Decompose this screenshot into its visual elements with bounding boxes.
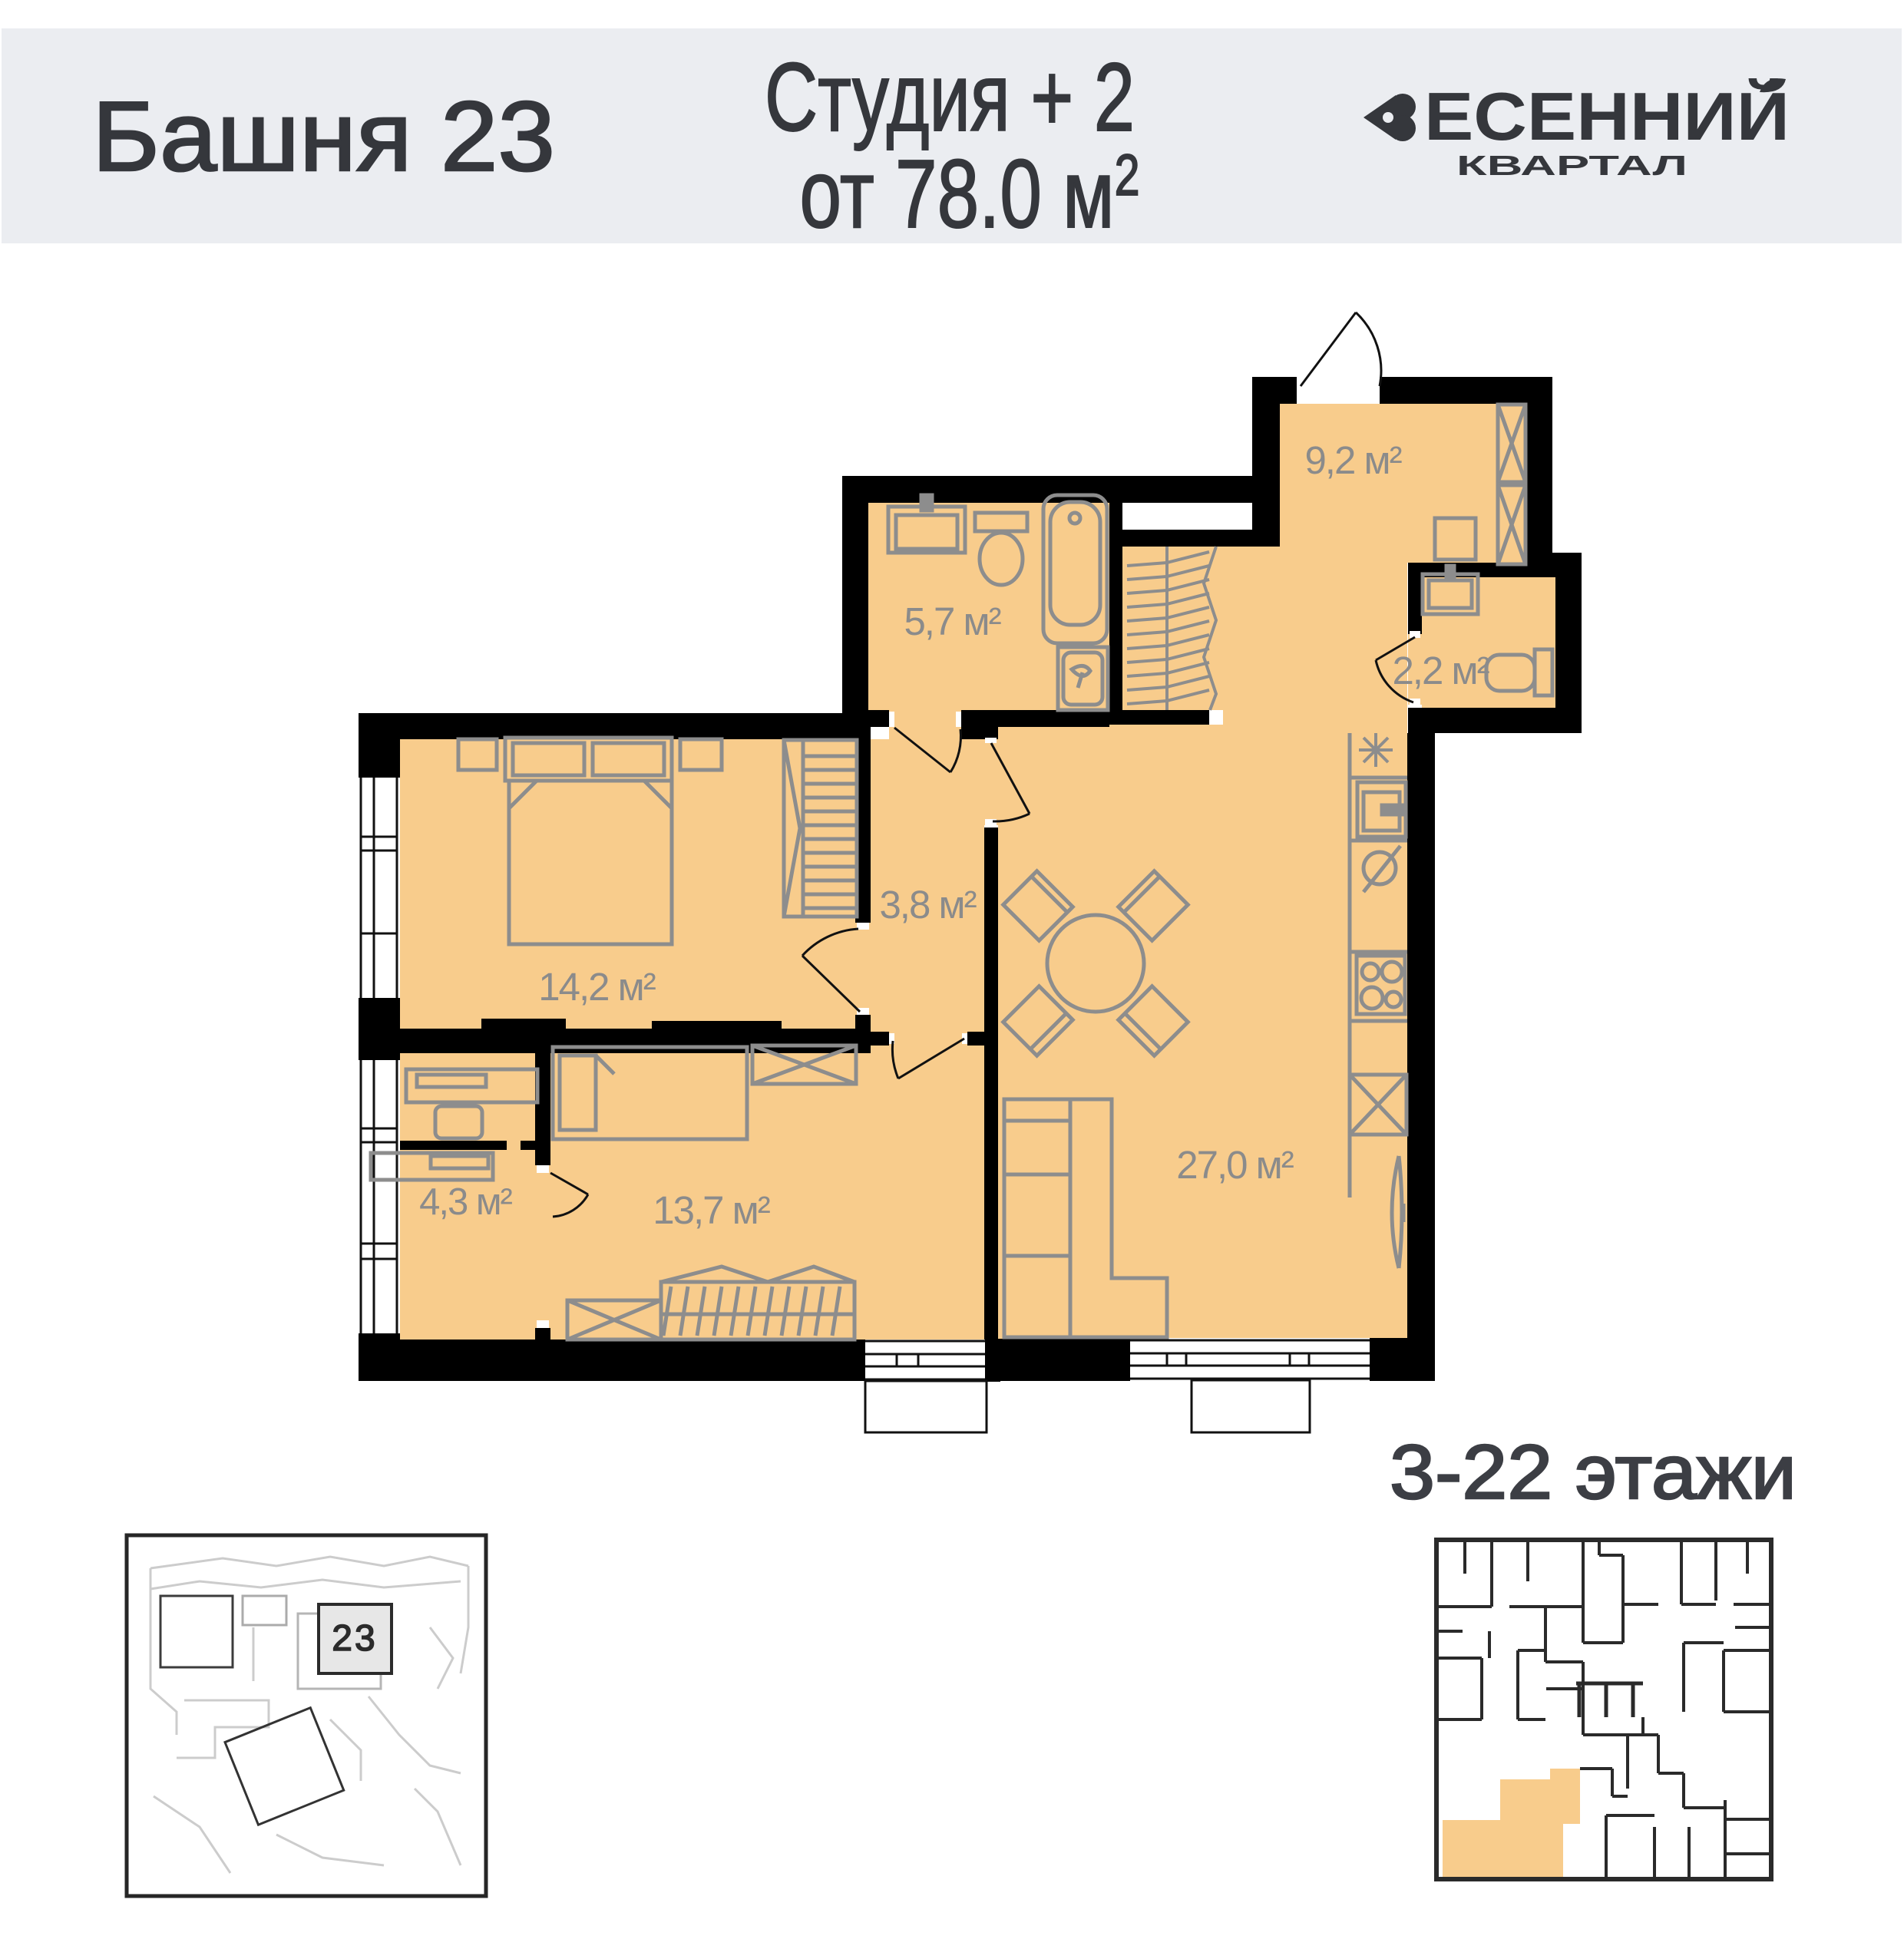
svg-text:3-22 этажи: 3-22 этажи (1390, 1429, 1797, 1515)
svg-text:от 78.0 м2: от 78.0 м2 (800, 140, 1140, 248)
svg-text:5,7 м²: 5,7 м² (904, 600, 1001, 643)
svg-text:2,2 м²: 2,2 м² (1392, 649, 1489, 692)
svg-text:9,2 м²: 9,2 м² (1304, 438, 1402, 482)
svg-text:4,3 м²: 4,3 м² (419, 1181, 512, 1223)
svg-text:КВАРТАЛ: КВАРТАЛ (1456, 150, 1687, 181)
svg-text:Студия + 2: Студия + 2 (765, 43, 1135, 151)
svg-text:13,7 м²: 13,7 м² (653, 1188, 770, 1232)
svg-text:27,0 м²: 27,0 м² (1176, 1143, 1294, 1187)
svg-text:ЕСЕННИЙ: ЕСЕННИЙ (1424, 78, 1790, 154)
svg-text:23: 23 (332, 1618, 377, 1659)
svg-text:14,2 м²: 14,2 м² (538, 965, 656, 1009)
svg-text:3,8 м²: 3,8 м² (879, 883, 977, 927)
svg-text:Башня 23: Башня 23 (92, 81, 555, 192)
